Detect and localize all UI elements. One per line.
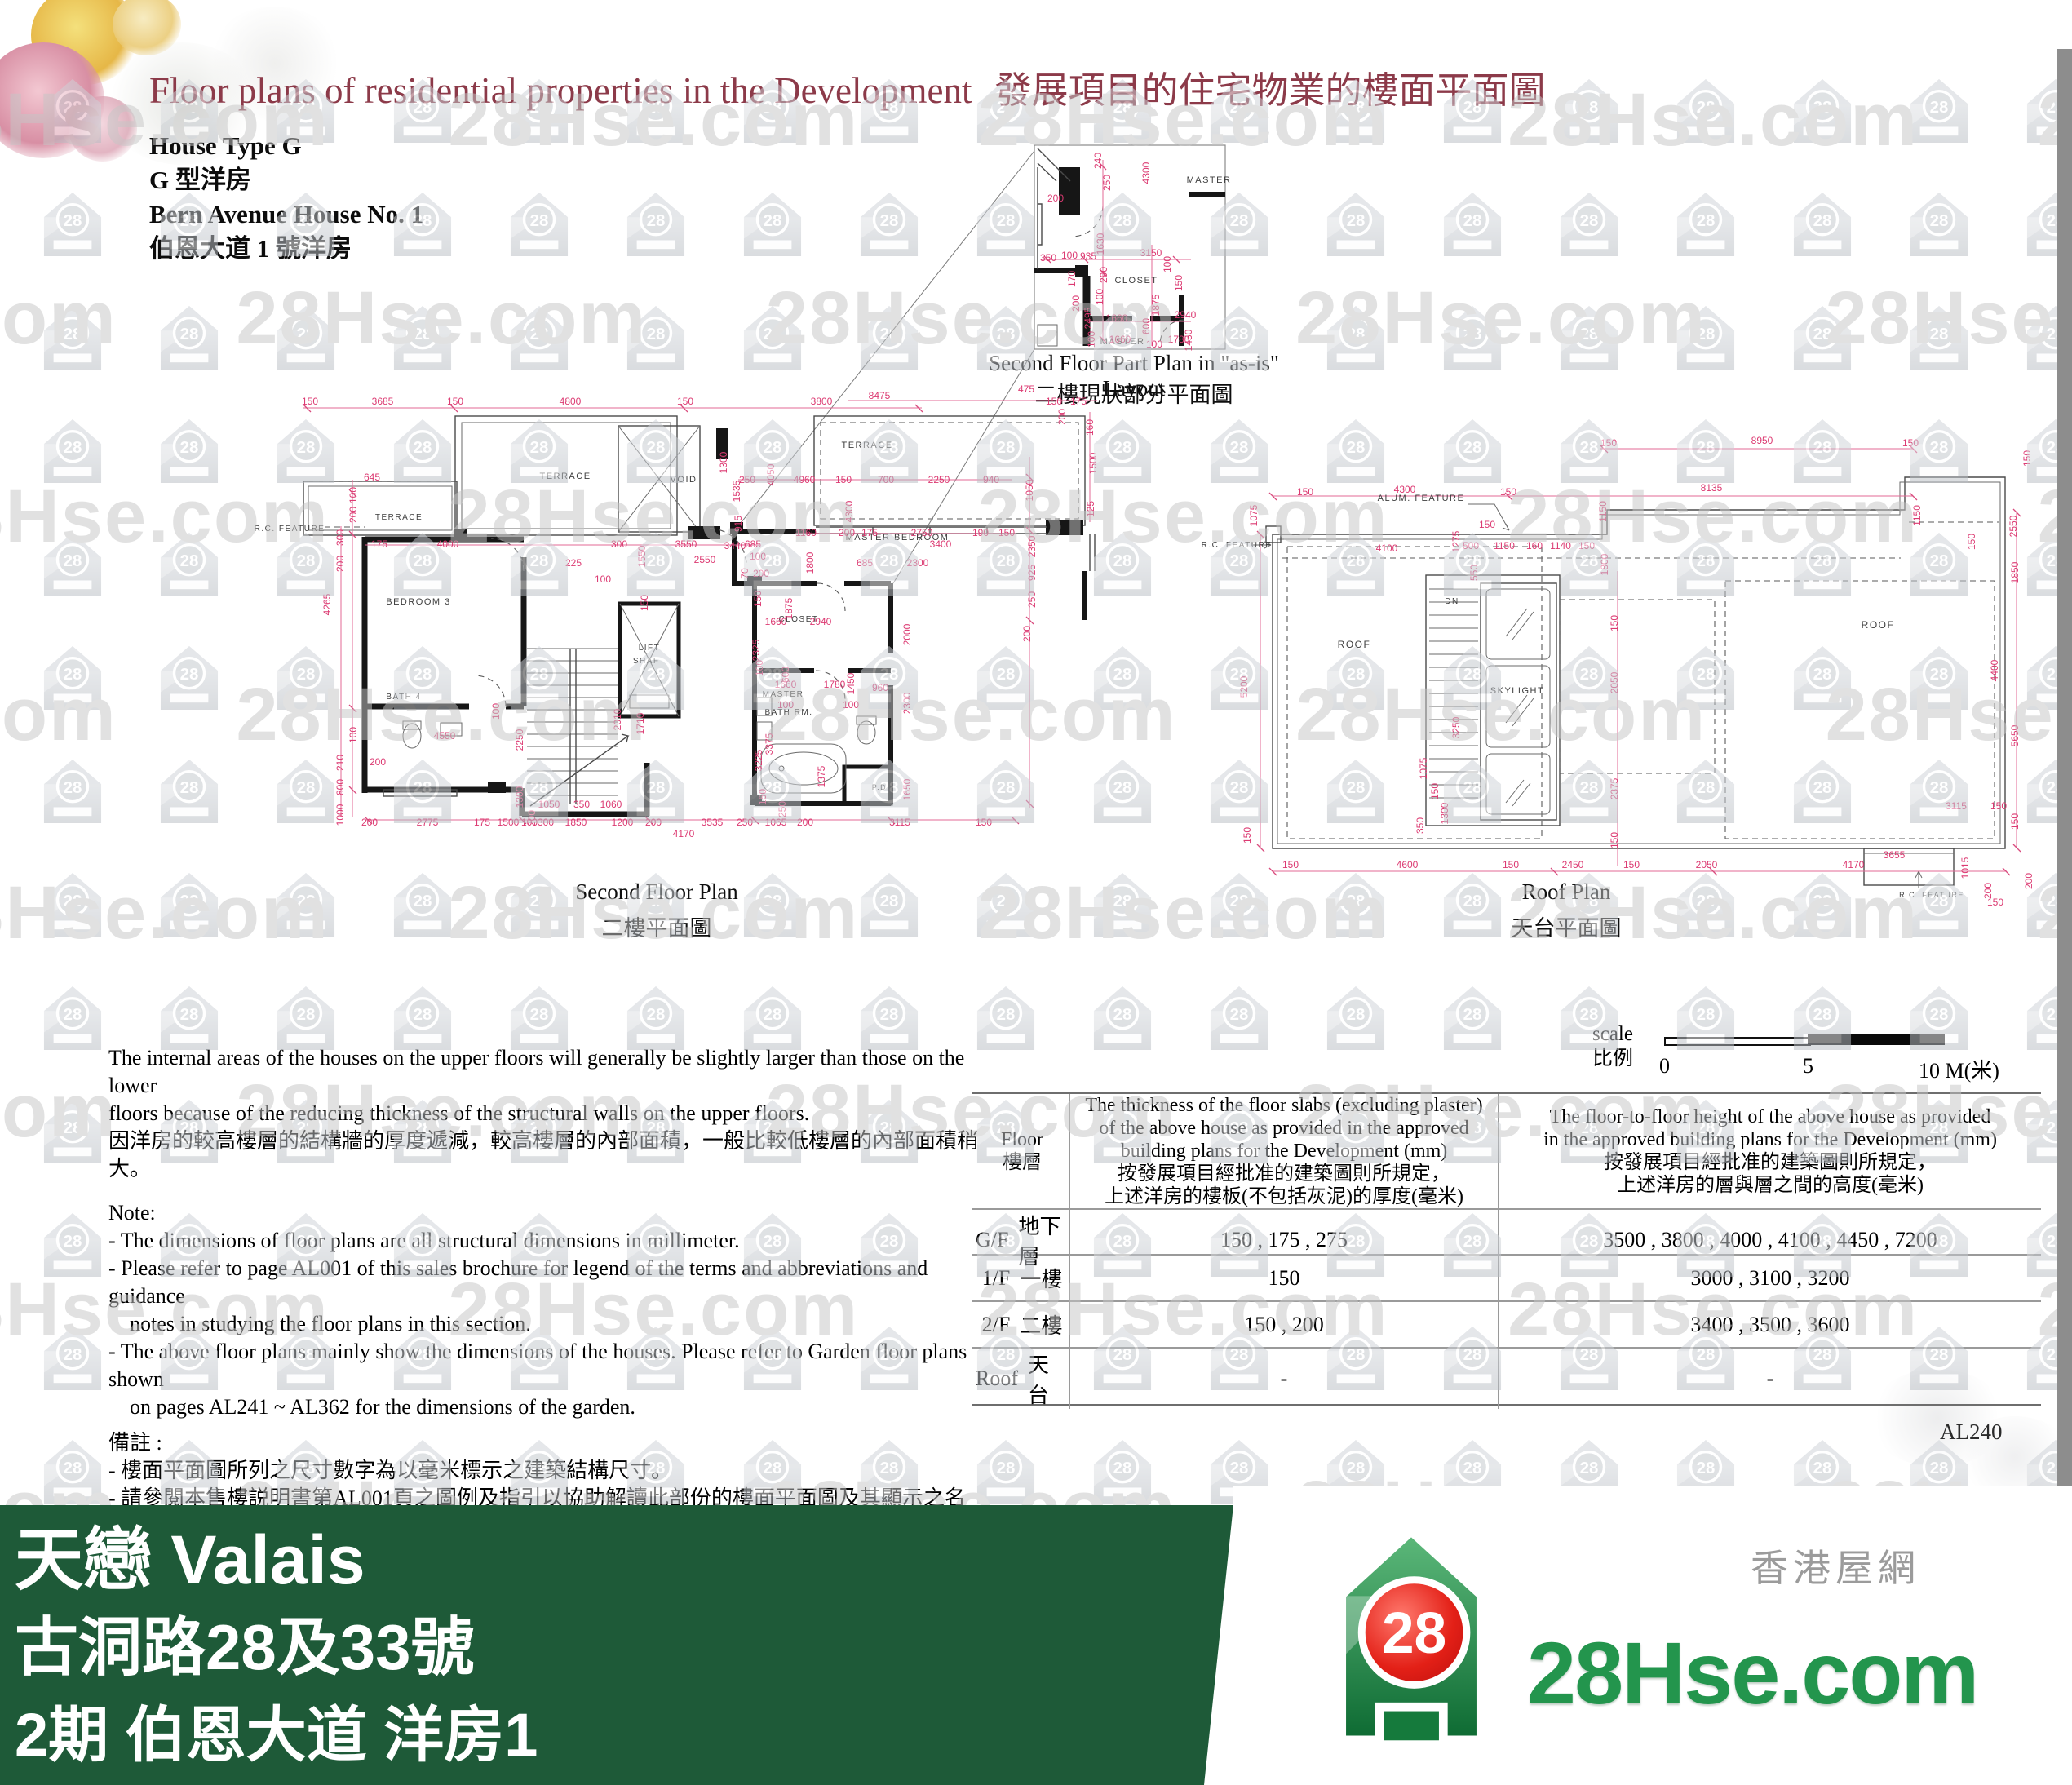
- dimension-label: 100: [750, 551, 766, 562]
- dimension-label: 1500: [1087, 452, 1099, 474]
- roof-room-labels: ALUM. FEATURER.C. FEATUREROOFDNSKYLIGHTR…: [1202, 494, 1964, 899]
- dimension-label: 100: [1086, 331, 1097, 348]
- dimension-label: 1300: [514, 786, 525, 808]
- note-item: - Please refer to page AL001 of this sal…: [108, 1255, 985, 1310]
- dimension-label: 3550: [675, 538, 697, 550]
- dimension-label: 2050: [1609, 671, 1620, 693]
- dimension-label: 150: [2021, 450, 2033, 467]
- dimension-label: 1075: [1418, 757, 1429, 779]
- note-item: - The dimensions of floor plans are all …: [108, 1227, 985, 1255]
- dimension-label: 2300: [907, 557, 929, 569]
- dimension-label: 500: [1463, 540, 1479, 551]
- dimension-label: 1450: [845, 672, 857, 694]
- roof-caption-zh: 天台平面圖: [1444, 910, 1689, 942]
- dimension-label: 685: [745, 538, 761, 550]
- dimension-label: 150: [976, 817, 992, 828]
- dimension-label: 300: [538, 817, 554, 828]
- dimension-label: 925: [1026, 565, 1038, 581]
- dimension-label: 1375: [816, 765, 827, 787]
- logo-circle-number: 28: [1382, 1601, 1446, 1666]
- dimension-label: 1650: [901, 778, 913, 800]
- logo-28hse-text: 28Hse.com: [1527, 1622, 1977, 1724]
- dimension-label: 150: [677, 396, 693, 407]
- second-floor-stairs: [527, 604, 679, 806]
- dimension-label: 2940: [810, 616, 832, 627]
- dimension-label: 150: [1242, 827, 1253, 844]
- roof-plan: ALUM. FEATURER.C. FEATUREROOFDNSKYLIGHTR…: [1198, 400, 2041, 910]
- dimension-label: 1200: [612, 817, 634, 828]
- dimension-label: 4800: [560, 396, 582, 407]
- dimension-label: 2750: [911, 527, 933, 538]
- room-label: VOID: [671, 475, 697, 485]
- dimension-label: 150: [1429, 783, 1441, 799]
- scale-tick-10: 10 M(米): [1919, 1054, 1999, 1084]
- dimension-label: 290: [1098, 267, 1109, 283]
- room-label: R.C. FEATURE: [1899, 891, 1964, 899]
- dimension-label: 645: [364, 472, 380, 483]
- dimension-label: 550: [1468, 565, 1480, 581]
- dimension-label: 100: [754, 660, 765, 676]
- room-label: ALUM. FEATURE: [1378, 494, 1465, 503]
- dimension-label: 100: [1162, 256, 1173, 272]
- dimension-label: 250: [1101, 175, 1113, 191]
- dimension-label: 200: [1070, 295, 1082, 312]
- dimension-label: 150: [1297, 486, 1313, 498]
- dimension-label: 1450: [1183, 329, 1194, 351]
- dimension-label: 200: [361, 817, 378, 828]
- dimension-label: 685: [857, 557, 873, 569]
- second-floor-plan: TERRACETERRACEVOIDTERRACEMASTER BEDROOMR…: [219, 383, 1108, 853]
- dimension-label: 3655: [1884, 849, 1906, 861]
- dimension-label: 100: [521, 817, 538, 828]
- room-label: BATH 4: [386, 693, 421, 702]
- dimension-label: 100: [1094, 289, 1105, 305]
- table-row: Roof天台 - -: [972, 1347, 2041, 1404]
- second-floor-caption-zh: 二樓平面圖: [534, 910, 779, 942]
- dimension-label: 1800: [804, 551, 816, 574]
- dimension-label: 600: [1140, 318, 1152, 334]
- second-floor-caption-en: Second Floor Plan: [534, 879, 779, 905]
- dimension-label: 1850: [2009, 561, 2021, 583]
- table-row: 1/F一樓 150 3000 , 3100 , 3200: [972, 1254, 2041, 1300]
- dimension-label: 200: [1982, 883, 1994, 899]
- dimension-label: 300: [334, 529, 346, 546]
- room-label: TERRACE: [841, 441, 892, 450]
- dimension-label: 1060: [600, 799, 622, 810]
- dimension-label: 250: [737, 817, 753, 828]
- banner-address: 古洞路28及33號: [15, 1597, 475, 1688]
- dimension-label: 150: [1046, 396, 1062, 407]
- dimension-label: 3150: [1140, 247, 1162, 259]
- dimension-label: 150: [1609, 832, 1620, 848]
- dimension-label: 3685: [372, 396, 394, 407]
- dimension-label: 2775: [417, 817, 439, 828]
- note-label: Note:: [108, 1199, 985, 1227]
- dimension-label: 2250: [928, 474, 950, 485]
- dimension-label: 4300: [1394, 484, 1416, 495]
- dimension-label: 1630: [1095, 233, 1106, 255]
- dimension-label: 100: [1061, 250, 1078, 261]
- dimension-label: 4550: [434, 730, 456, 742]
- dimension-label: 1500: [498, 817, 520, 828]
- dimension-label: 150: [1282, 859, 1299, 870]
- dimension-label: 200: [348, 507, 359, 523]
- dimension-label: 200: [370, 756, 386, 768]
- dimension-label: 170: [1066, 271, 1078, 287]
- dimension-label: 700: [878, 474, 894, 485]
- dimension-label: 250: [777, 801, 788, 817]
- dimension-label: 1850: [565, 817, 587, 828]
- dimension-label: 2250: [514, 729, 525, 751]
- dimension-label: 3225: [753, 749, 764, 771]
- dimension-label: 150: [639, 595, 650, 611]
- dimension-label: 100: [595, 574, 611, 585]
- dimension-label: 100: [348, 487, 359, 503]
- dimension-label: 1075: [1248, 504, 1260, 526]
- dimension-label: 2375: [1609, 777, 1620, 799]
- note-label-zh: 備註 :: [108, 1429, 985, 1457]
- dimension-label: 100: [1146, 339, 1162, 350]
- dimension-label: 3800: [811, 396, 833, 407]
- room-label: DN: [1445, 597, 1459, 606]
- dimension-label: 200: [1021, 626, 1033, 642]
- page-number: AL240: [1940, 1420, 2003, 1445]
- dimension-label: 2495: [1082, 307, 1094, 329]
- dimension-label: 150: [752, 591, 764, 607]
- dimension-label: 70: [739, 568, 750, 579]
- dimension-label: 200: [1056, 409, 1068, 425]
- dimension-label: 1535: [731, 480, 742, 502]
- dimension-label: 350: [1040, 252, 1056, 264]
- logo-tagline: 香港屋網: [1751, 1539, 1920, 1592]
- dimension-label: 350: [1415, 817, 1426, 834]
- note-item-zh: - 樓面平面圖所列之尺寸數字為以毫米標示之建築結構尺寸。: [108, 1457, 985, 1485]
- dimension-label: 1660: [775, 679, 797, 690]
- dimension-label: 915: [733, 516, 744, 532]
- dimension-label: 4265: [321, 593, 333, 615]
- dimension-label: 210: [334, 755, 346, 771]
- inset-part-plan: MASTERCLOSETMASTER 240250430020035010093…: [1020, 98, 1273, 359]
- scale-bar-segment-white: [1664, 1037, 1811, 1046]
- dimension-label: 1140: [1550, 540, 1571, 551]
- dimension-label: 5650: [2009, 724, 2021, 746]
- roof-stair-skylight: [1426, 575, 1715, 826]
- roof-caption-en: Roof Plan: [1444, 879, 1689, 905]
- dimension-label: 3375: [764, 733, 775, 755]
- dimension-label: 1550: [636, 545, 648, 567]
- roof-leaders: [1251, 504, 1922, 888]
- dimension-label: 200: [2023, 873, 2034, 889]
- dimension-label: 200: [797, 817, 813, 828]
- dimension-label: 3400: [930, 538, 952, 550]
- table-header-row: Floor 樓層 The thickness of the floor slab…: [972, 1094, 2041, 1208]
- dimension-label: 1150: [1597, 501, 1609, 522]
- dimension-label: 300: [611, 538, 627, 550]
- dimension-label: 200: [645, 817, 662, 828]
- dimension-label: 1050: [538, 799, 560, 810]
- scale-label: scale 比例: [1592, 1022, 1633, 1071]
- dimension-label: 150: [1966, 534, 1977, 550]
- dimension-label: 5200: [1238, 675, 1250, 698]
- dimension-label: 4600: [1397, 859, 1419, 870]
- dimension-label: 2940: [1175, 309, 1197, 321]
- note-item: - The above floor plans mainly show the …: [108, 1338, 985, 1393]
- dimension-label: 2050: [1696, 859, 1718, 870]
- room-label: SKYLIGHT: [1490, 686, 1544, 696]
- dimension-label: 3440: [724, 540, 746, 551]
- dimension-label: 1660: [1109, 334, 1131, 345]
- table-row: G/F地下層 150 , 175 , 275 3500 , 3800 , 400…: [972, 1208, 2041, 1254]
- dimension-label: 150: [1173, 275, 1184, 291]
- dimension-label: 150: [302, 396, 318, 407]
- dimension-label: 2550: [694, 554, 716, 565]
- dimension-label: 1300: [1439, 802, 1450, 824]
- dimension-label: 4400: [1989, 659, 2000, 681]
- dimension-label: 2550: [2008, 515, 2019, 537]
- dimension-label: 1300: [718, 451, 729, 473]
- dimension-label: 150: [1500, 486, 1516, 498]
- dimension-label: 2010: [612, 708, 623, 730]
- dimension-label: 250: [1026, 591, 1038, 608]
- room-label: TERRACE: [375, 513, 423, 522]
- banner-phase-house: 2期 伯恩大道 洋房1: [15, 1686, 538, 1774]
- roof-outline: [1266, 477, 2005, 885]
- scale-tick-5: 5: [1803, 1054, 1813, 1079]
- dimension-label: 100: [348, 727, 359, 743]
- room-label: BEDROOM 3: [386, 597, 451, 607]
- dimension-label: 940: [983, 474, 999, 485]
- dimension-label: 150: [1600, 437, 1617, 449]
- dimension-label: 4170: [673, 828, 695, 839]
- banner-property-name: 天戀 Valais: [15, 1505, 365, 1604]
- dimension-label: 150: [1479, 519, 1495, 530]
- dimension-label: 190: [972, 527, 989, 538]
- dimension-label: 3115: [1946, 800, 1967, 812]
- dimension-label: 4300: [1140, 162, 1152, 184]
- dimension-label: 100: [777, 699, 794, 711]
- dimension-label: 175: [474, 817, 490, 828]
- room-label: P.D.: [872, 783, 890, 791]
- notes-paragraph-en: The internal areas of the houses on the …: [108, 1044, 985, 1100]
- dimension-label: 3535: [702, 817, 724, 828]
- dimension-label: 4100: [1376, 543, 1398, 554]
- room-label: CLOSET: [1114, 276, 1158, 286]
- room-label: R.C. FEATURE: [1202, 541, 1273, 550]
- dimension-label: 4050: [765, 463, 777, 485]
- dimension-label: 200: [334, 556, 346, 572]
- dimension-label: 175: [371, 538, 387, 550]
- dimension-label: 1660: [1106, 312, 1128, 324]
- roof-dimension-labels: 1508950150150430015081351150255015010755…: [1238, 435, 2034, 908]
- dimension-label: 150: [1902, 437, 1919, 449]
- dimension-label: 100: [843, 699, 859, 711]
- dimension-label: 350: [573, 799, 590, 810]
- room-label: SHAFT: [633, 657, 666, 666]
- dimension-label: 1150: [1911, 505, 1923, 526]
- dimension-label: 8135: [1701, 482, 1723, 494]
- dimension-label: 800: [334, 779, 346, 795]
- dimension-label: 4170: [1843, 859, 1865, 870]
- room-label: ROOF: [1338, 639, 1371, 650]
- dimension-label: 2450: [1562, 859, 1584, 870]
- dimension-label: 2325: [750, 639, 762, 661]
- dimension-label: 4000: [437, 538, 459, 550]
- room-label: MASTER: [763, 690, 804, 699]
- dimension-label: 1065: [765, 817, 787, 828]
- dimension-label: 150: [757, 789, 768, 805]
- dimension-label: 1780: [824, 679, 846, 690]
- dimension-label: 240: [1092, 153, 1104, 169]
- dimension-label: 1150: [1494, 540, 1515, 551]
- dimension-label: 200: [1047, 193, 1064, 204]
- room-label: TERRACE: [539, 472, 591, 481]
- table-row: 2/F二樓 150 , 200 3400 , 3500 , 3600: [972, 1300, 2041, 1347]
- dimension-label: 960: [872, 682, 888, 693]
- dimension-label: 1800: [1599, 553, 1610, 575]
- dimension-label: 475: [1018, 383, 1034, 395]
- dimension-label: 2300: [901, 692, 913, 714]
- scale-bar-segment-black: [1808, 1034, 1945, 1045]
- dimension-label: 150: [1578, 540, 1595, 551]
- dimension-label: 1050: [1024, 479, 1035, 501]
- dimension-label: 1710: [635, 712, 646, 734]
- dimension-label: 150: [2009, 813, 2021, 830]
- dimension-label: 150: [1503, 859, 1519, 870]
- dimension-label: 175: [1070, 396, 1087, 407]
- dimension-label: 150: [835, 474, 852, 485]
- dimension-label: 4300: [843, 500, 855, 522]
- dimension-label: 1015: [1959, 857, 1971, 879]
- room-label: LIFT: [639, 644, 661, 653]
- dimension-label: 225: [565, 557, 582, 569]
- room-label: ROOF: [1862, 619, 1895, 631]
- dimension-label: 125: [1085, 501, 1096, 517]
- dimension-label: 4960: [794, 474, 816, 485]
- dimension-label: 8475: [869, 390, 891, 401]
- dimension-label: 200: [753, 568, 769, 579]
- dimension-label: 150: [1623, 859, 1640, 870]
- page-edge-strip: [2057, 49, 2072, 1486]
- property-banner: 天戀 Valais 古洞路28及33號 2期 伯恩大道 洋房1: [0, 1505, 1240, 1785]
- dimension-label: 200: [839, 527, 855, 538]
- floor-spec-table: Floor 樓層 The thickness of the floor slab…: [972, 1092, 2041, 1406]
- dimension-label: 8950: [1751, 435, 1773, 446]
- dimension-label: 150: [1609, 615, 1620, 631]
- dimension-label: 160: [1526, 540, 1543, 551]
- dimension-label: 1000: [334, 804, 346, 826]
- dimension-label: 1275: [1450, 530, 1462, 552]
- dimension-label: 2000: [901, 623, 913, 645]
- dimension-label: 1875: [1150, 294, 1162, 316]
- dimension-label: 160: [1084, 419, 1096, 436]
- dimension-label: 150: [447, 396, 463, 407]
- scale-tick-0: 0: [1659, 1054, 1670, 1079]
- dimension-label: 1160: [795, 527, 817, 538]
- room-label: R.C. FEATURE: [255, 525, 325, 534]
- dimension-label: 2350: [1026, 535, 1038, 557]
- dimension-label: 1660: [765, 616, 787, 627]
- dimension-label: 100: [490, 703, 502, 720]
- logo-28hse-house-icon: 28: [1338, 1530, 1485, 1749]
- dimension-label: 150: [998, 527, 1015, 538]
- dimension-label: 150: [1990, 800, 2007, 812]
- room-label: MASTER: [1187, 175, 1232, 185]
- dimension-label: 175: [861, 527, 878, 538]
- notes-paragraph-zh: 因洋房的較高樓層的結構牆的厚度遞減，較高樓層的內部面積，一般比較低樓層的內部面積…: [108, 1127, 985, 1183]
- dimension-label: 3250: [1450, 716, 1462, 738]
- dimension-label: 3115: [889, 817, 910, 828]
